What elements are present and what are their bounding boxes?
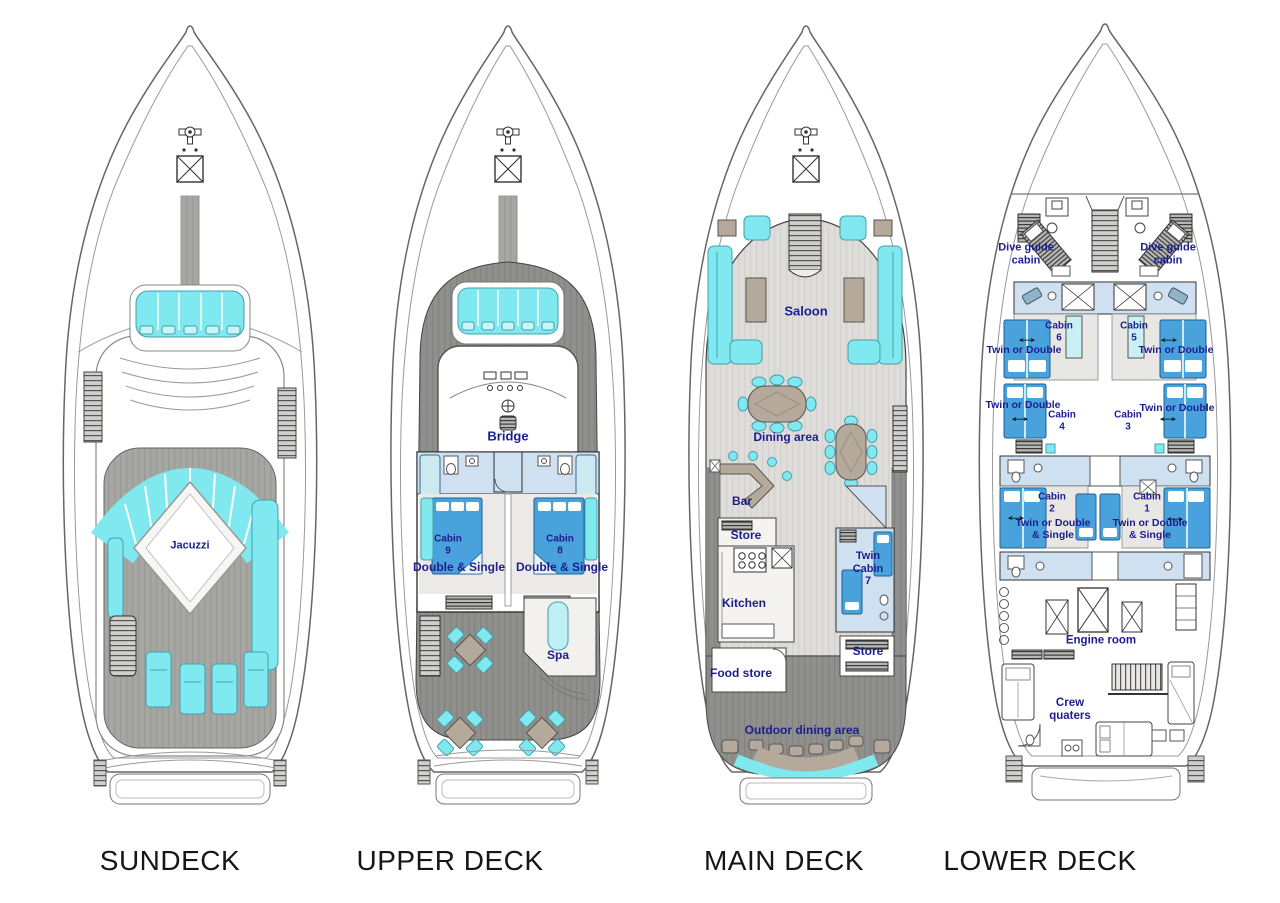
aft-stairs	[420, 616, 440, 676]
twin-cabin-7	[836, 528, 894, 632]
guest-cabin-block	[417, 452, 599, 612]
helm-seat	[500, 416, 516, 430]
main-deck-plan-drawing	[680, 20, 930, 835]
cabin1-single-bed	[1100, 494, 1120, 540]
side-stairs-port	[84, 372, 102, 442]
coffee-table	[844, 278, 864, 322]
helm-wheel-icon	[502, 400, 514, 412]
yacht-deck-plan-diagram: Jacuzzi Bridge Cabin 9 Double & Single C…	[0, 0, 1280, 903]
armchair	[744, 216, 770, 240]
store-forward	[718, 518, 776, 546]
wardrobe	[446, 596, 492, 609]
forward-sunpad	[452, 282, 564, 344]
aft-stairs-starboard	[893, 406, 907, 472]
cabin9-single-bed	[421, 498, 433, 560]
crew-stairs	[1112, 664, 1162, 690]
spa-bed	[548, 602, 568, 650]
side-table	[718, 220, 736, 236]
deck-title-sundeck: SUNDECK	[100, 845, 240, 877]
side-stairs-starboard	[278, 388, 296, 458]
deck-title-main: MAIN DECK	[704, 845, 864, 877]
bathroom-strip-2	[1000, 456, 1210, 486]
swim-platform	[740, 778, 872, 804]
upper-deck-plan-drawing	[385, 20, 635, 835]
cabin4-bed	[1004, 384, 1046, 438]
armchair	[840, 216, 866, 240]
bow-hatch-icon	[495, 156, 521, 182]
sun-lounger	[252, 500, 278, 670]
cabin2-single-bed	[1076, 494, 1096, 540]
bathroom-strip-3	[1000, 552, 1210, 580]
lower-deck-plan-drawing	[970, 20, 1240, 835]
bow-hatch-icon	[793, 156, 819, 182]
aft-stairs	[110, 616, 136, 676]
sundeck-plan-drawing	[50, 20, 330, 835]
forward-sunpad	[130, 285, 250, 351]
deck-title-upper: UPPER DECK	[356, 845, 543, 877]
bow-hatch-icon	[177, 156, 203, 182]
cabin2-bed	[1000, 488, 1046, 548]
wardrobe	[1016, 440, 1042, 453]
cabin9-double-bed	[432, 498, 482, 574]
deck-title-lower: LOWER DECK	[943, 845, 1136, 877]
coffee-table	[746, 278, 766, 322]
cabin3-bed	[1164, 384, 1206, 438]
cabin8-single-bed	[585, 498, 597, 560]
cabin6-bed	[1004, 320, 1050, 378]
sun-lounger	[108, 538, 123, 618]
saloon-stairs	[789, 214, 821, 277]
cabin5-bed	[1160, 320, 1206, 378]
kitchen	[718, 546, 794, 642]
side-table	[874, 220, 892, 236]
food-store	[712, 648, 786, 692]
cabin1-bed	[1164, 488, 1210, 548]
cabin8-double-bed	[534, 498, 584, 574]
bathroom-strip-1	[1014, 282, 1196, 314]
wardrobe	[1168, 440, 1194, 453]
store-aft	[840, 636, 894, 676]
